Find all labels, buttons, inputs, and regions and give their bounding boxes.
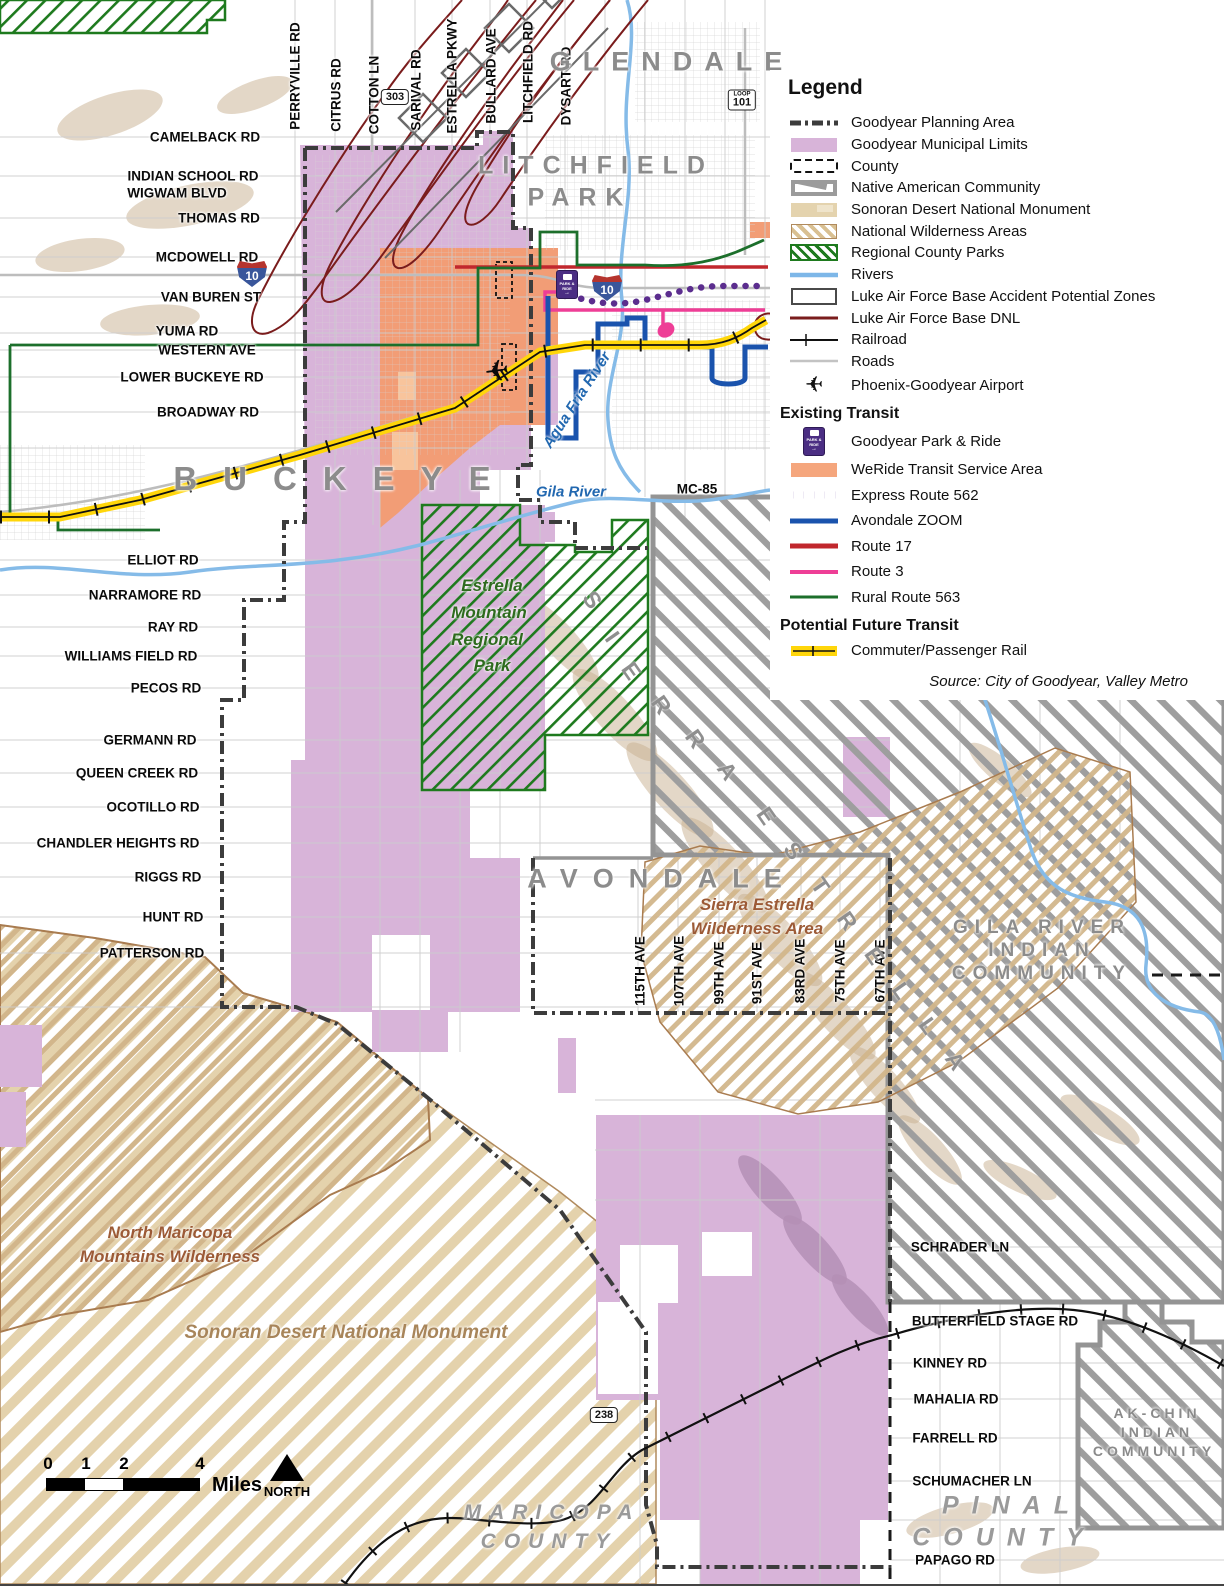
- wilderness-swatch: [788, 222, 840, 240]
- legend-item-weride: WeRide Transit Service Area: [788, 457, 1224, 483]
- scale-tick-0: 0: [43, 1454, 52, 1474]
- airport-legend-icon: ✈: [788, 376, 840, 394]
- legend-item-rivers: Rivers: [788, 264, 1224, 286]
- scale-unit-label: Miles: [212, 1474, 262, 1497]
- north-label: NORTH: [264, 1484, 310, 1499]
- legend-item-dnl: Luke Air Force Base DNL: [788, 307, 1224, 329]
- estrella-mountain-regional-park: [422, 505, 648, 790]
- county-swatch: [788, 157, 840, 175]
- apz-swatch: [788, 287, 840, 305]
- legend-item-commuter-rail: Commuter/Passenger Rail: [788, 638, 1224, 664]
- legend-item-planning-area: Goodyear Planning Area: [788, 112, 1224, 134]
- legend-item-apz: Luke Air Force Base Accident Potential Z…: [788, 286, 1224, 308]
- legend-item-route-3: Route 3: [788, 559, 1224, 585]
- rivers-swatch: [788, 266, 840, 284]
- legend-item-roads: Roads: [788, 351, 1224, 373]
- scale-tick-1: 1: [81, 1454, 90, 1474]
- planning-area-swatch: [788, 114, 840, 132]
- legend-item-avondale-zoom: Avondale ZOOM: [788, 508, 1224, 534]
- county-parks-swatch: [788, 244, 840, 262]
- legend-item-municipal-limits: Goodyear Municipal Limits: [788, 134, 1224, 156]
- route-3-swatch: [788, 563, 840, 581]
- legend-item-rural-563: Rural Route 563: [788, 584, 1224, 610]
- goodyear-transit-map: CAMELBACK RDINDIAN SCHOOL RDWIGWAM BLVDT…: [0, 0, 1224, 1586]
- legend-item-wilderness-areas: National Wilderness Areas: [788, 220, 1224, 242]
- airport-icon: ✈: [482, 353, 512, 391]
- route-17-swatch: [788, 537, 840, 555]
- route-303-shield: 303: [381, 89, 409, 105]
- ak-chin-indian-community-area: [1078, 1302, 1224, 1528]
- avondale-zoom-swatch: [788, 512, 840, 530]
- legend-item-sonoran-monument: Sonoran Desert National Monument: [788, 199, 1224, 221]
- legend-item-airport: ✈ Phoenix-Goodyear Airport: [788, 372, 1224, 398]
- legend-item-native-american-community: Native American Community: [788, 177, 1224, 199]
- legend-panel: Legend Goodyear Planning Area Goodyear M…: [770, 70, 1224, 700]
- dnl-swatch: [788, 309, 840, 327]
- legend-item-county: County: [788, 155, 1224, 177]
- rural-563-swatch: [788, 588, 840, 606]
- future-transit-header: Potential Future Transit: [780, 617, 1224, 635]
- municipal-limits-swatch: [788, 136, 840, 154]
- sonoran-monument-swatch: [788, 201, 840, 219]
- legend-item-regional-county-parks: Regional County Parks: [788, 242, 1224, 264]
- route-238-shield: 238: [590, 1407, 618, 1423]
- existing-transit-header: Existing Transit: [780, 405, 1224, 423]
- park-and-ride-legend-icon: PARK &RIDE→: [788, 432, 840, 450]
- roads-swatch: [788, 352, 840, 370]
- scale-bar-segments: [46, 1478, 200, 1491]
- legend-item-route-17: Route 17: [788, 533, 1224, 559]
- commuter-rail-swatch: [788, 642, 840, 660]
- legend-title: Legend: [788, 76, 1224, 100]
- park-and-ride-icon: PARK & RIDE →: [556, 270, 578, 299]
- scale-bar: 0 1 2 4 Miles NORTH: [46, 1452, 386, 1514]
- legend-item-park-and-ride: PARK &RIDE→ Goodyear Park & Ride: [788, 426, 1224, 457]
- native-american-swatch: [788, 179, 840, 197]
- legend-item-express-562: Express Route 562: [788, 482, 1224, 508]
- loop-101-shield: LOOP101: [728, 90, 756, 111]
- scale-tick-2: 2: [119, 1454, 128, 1474]
- regional-park-top-left: [0, 0, 225, 33]
- north-arrow-icon: [270, 1454, 304, 1481]
- source-note: Source: City of Goodyear, Valley Metro: [788, 663, 1224, 690]
- legend-item-railroad: Railroad: [788, 329, 1224, 351]
- bus-icon: [563, 274, 572, 280]
- weride-swatch: [788, 461, 840, 479]
- scale-tick-4: 4: [195, 1454, 204, 1474]
- railroad-swatch: [788, 331, 840, 349]
- express-562-swatch: [788, 486, 840, 504]
